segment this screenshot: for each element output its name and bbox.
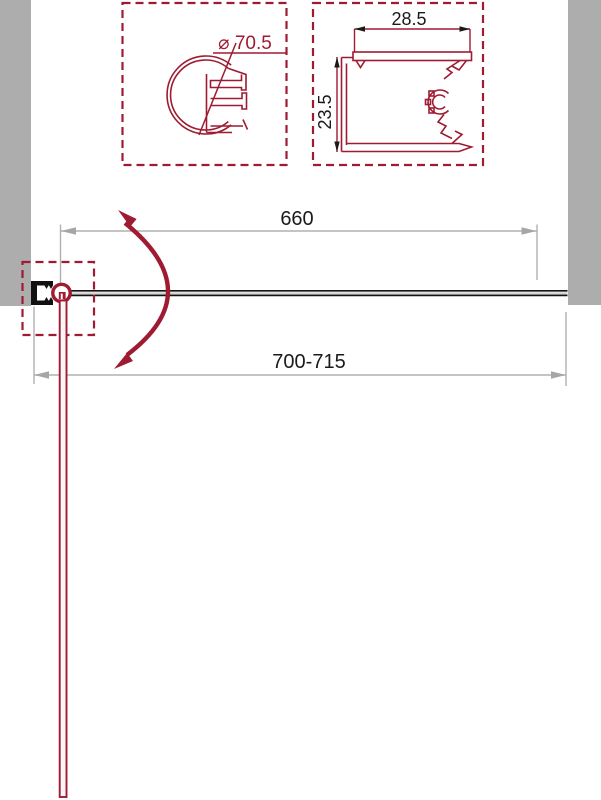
wall-profile-section: [342, 52, 472, 152]
glass-width-label: 660: [280, 208, 313, 230]
detail-box-wall-profile: 28.5 23.5: [313, 3, 483, 165]
wall-profile-foot: [342, 144, 472, 152]
dimension-overall-width: 700-715: [34, 307, 566, 387]
detail-box-hinge-border: [123, 3, 287, 165]
profile-tooth-3: [45, 297, 49, 301]
wall-mount-profile-body: [31, 281, 53, 305]
swing-arc: [125, 223, 168, 355]
hinge: [53, 284, 70, 301]
wall-profile-left-wall: [342, 58, 354, 152]
wall-mount-profile-plan: [31, 281, 53, 305]
wall-right: [568, 0, 601, 305]
profile-tooth-1: [45, 286, 49, 290]
dimension-profile-height: 23.5: [315, 57, 340, 152]
swing-arc-arrow: [114, 210, 168, 369]
arrowhead-700-right: [551, 371, 566, 378]
arrowhead-660-left: [61, 227, 76, 234]
wall-profile-lower-diagonal: [438, 115, 452, 139]
hinge-core-slot: [61, 294, 63, 300]
dimension-profile-width: 28.5: [355, 9, 471, 52]
profile-height-label: 23.5: [315, 94, 335, 129]
arrowhead-660-right: [522, 227, 537, 234]
clamp-top-arm: [211, 68, 247, 90]
door-panel-open-position: [60, 301, 67, 798]
arrowhead-700-left: [34, 371, 49, 378]
hinge-profile-outer-ring: [167, 56, 231, 134]
drawing-svg: ⌀ 70.5: [0, 0, 601, 800]
hinge-profile-inner-ring: [171, 60, 229, 130]
overall-width-label: 700-715: [272, 351, 345, 373]
screw-boss-inner: [433, 95, 445, 109]
wall-profile-top-cap: [353, 52, 472, 61]
swing-arrowhead-bottom: [114, 353, 133, 369]
detail-box-hinge-profile: ⌀ 70.5: [123, 3, 288, 165]
wall-profile-tooth: [356, 61, 365, 68]
profile-width-label: 28.5: [391, 9, 426, 29]
wall-left: [0, 0, 31, 306]
hinge-profile-section: [167, 56, 247, 134]
clamp-bottom-arm: [207, 120, 248, 133]
hinge-profile-diameter-label: ⌀ 70.5: [218, 33, 272, 54]
wall-profile-lower-hook: [452, 131, 462, 144]
glass-panel: [70, 290, 568, 295]
clamp-middle-arm: [211, 93, 247, 109]
shower-screen-technical-drawing: ⌀ 70.5: [0, 0, 601, 800]
